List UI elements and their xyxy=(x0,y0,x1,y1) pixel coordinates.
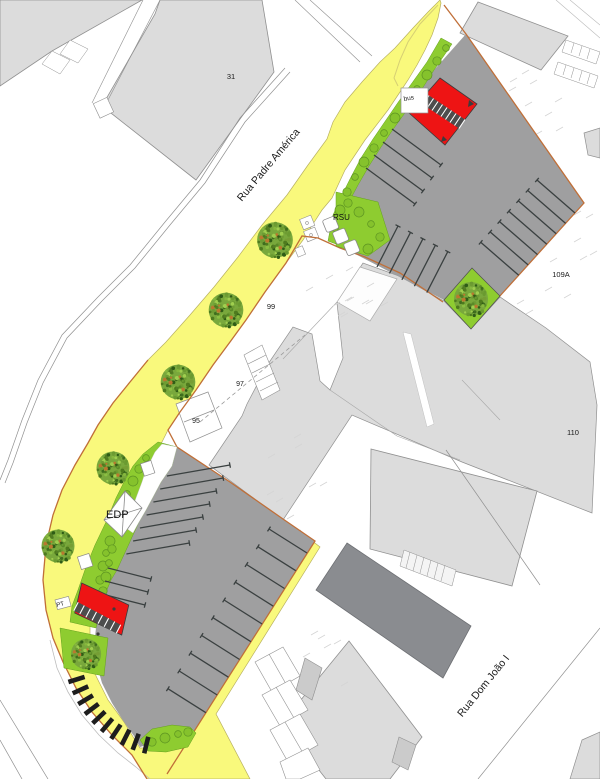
svg-text:95: 95 xyxy=(192,418,200,425)
svg-text:109A: 109A xyxy=(552,270,570,279)
svg-text:97: 97 xyxy=(236,381,244,388)
svg-text:EDP: EDP xyxy=(106,509,129,521)
svg-text:99: 99 xyxy=(267,302,275,311)
svg-text:110: 110 xyxy=(567,428,579,437)
svg-text:RSU: RSU xyxy=(333,213,350,222)
svg-text:31: 31 xyxy=(227,72,235,81)
